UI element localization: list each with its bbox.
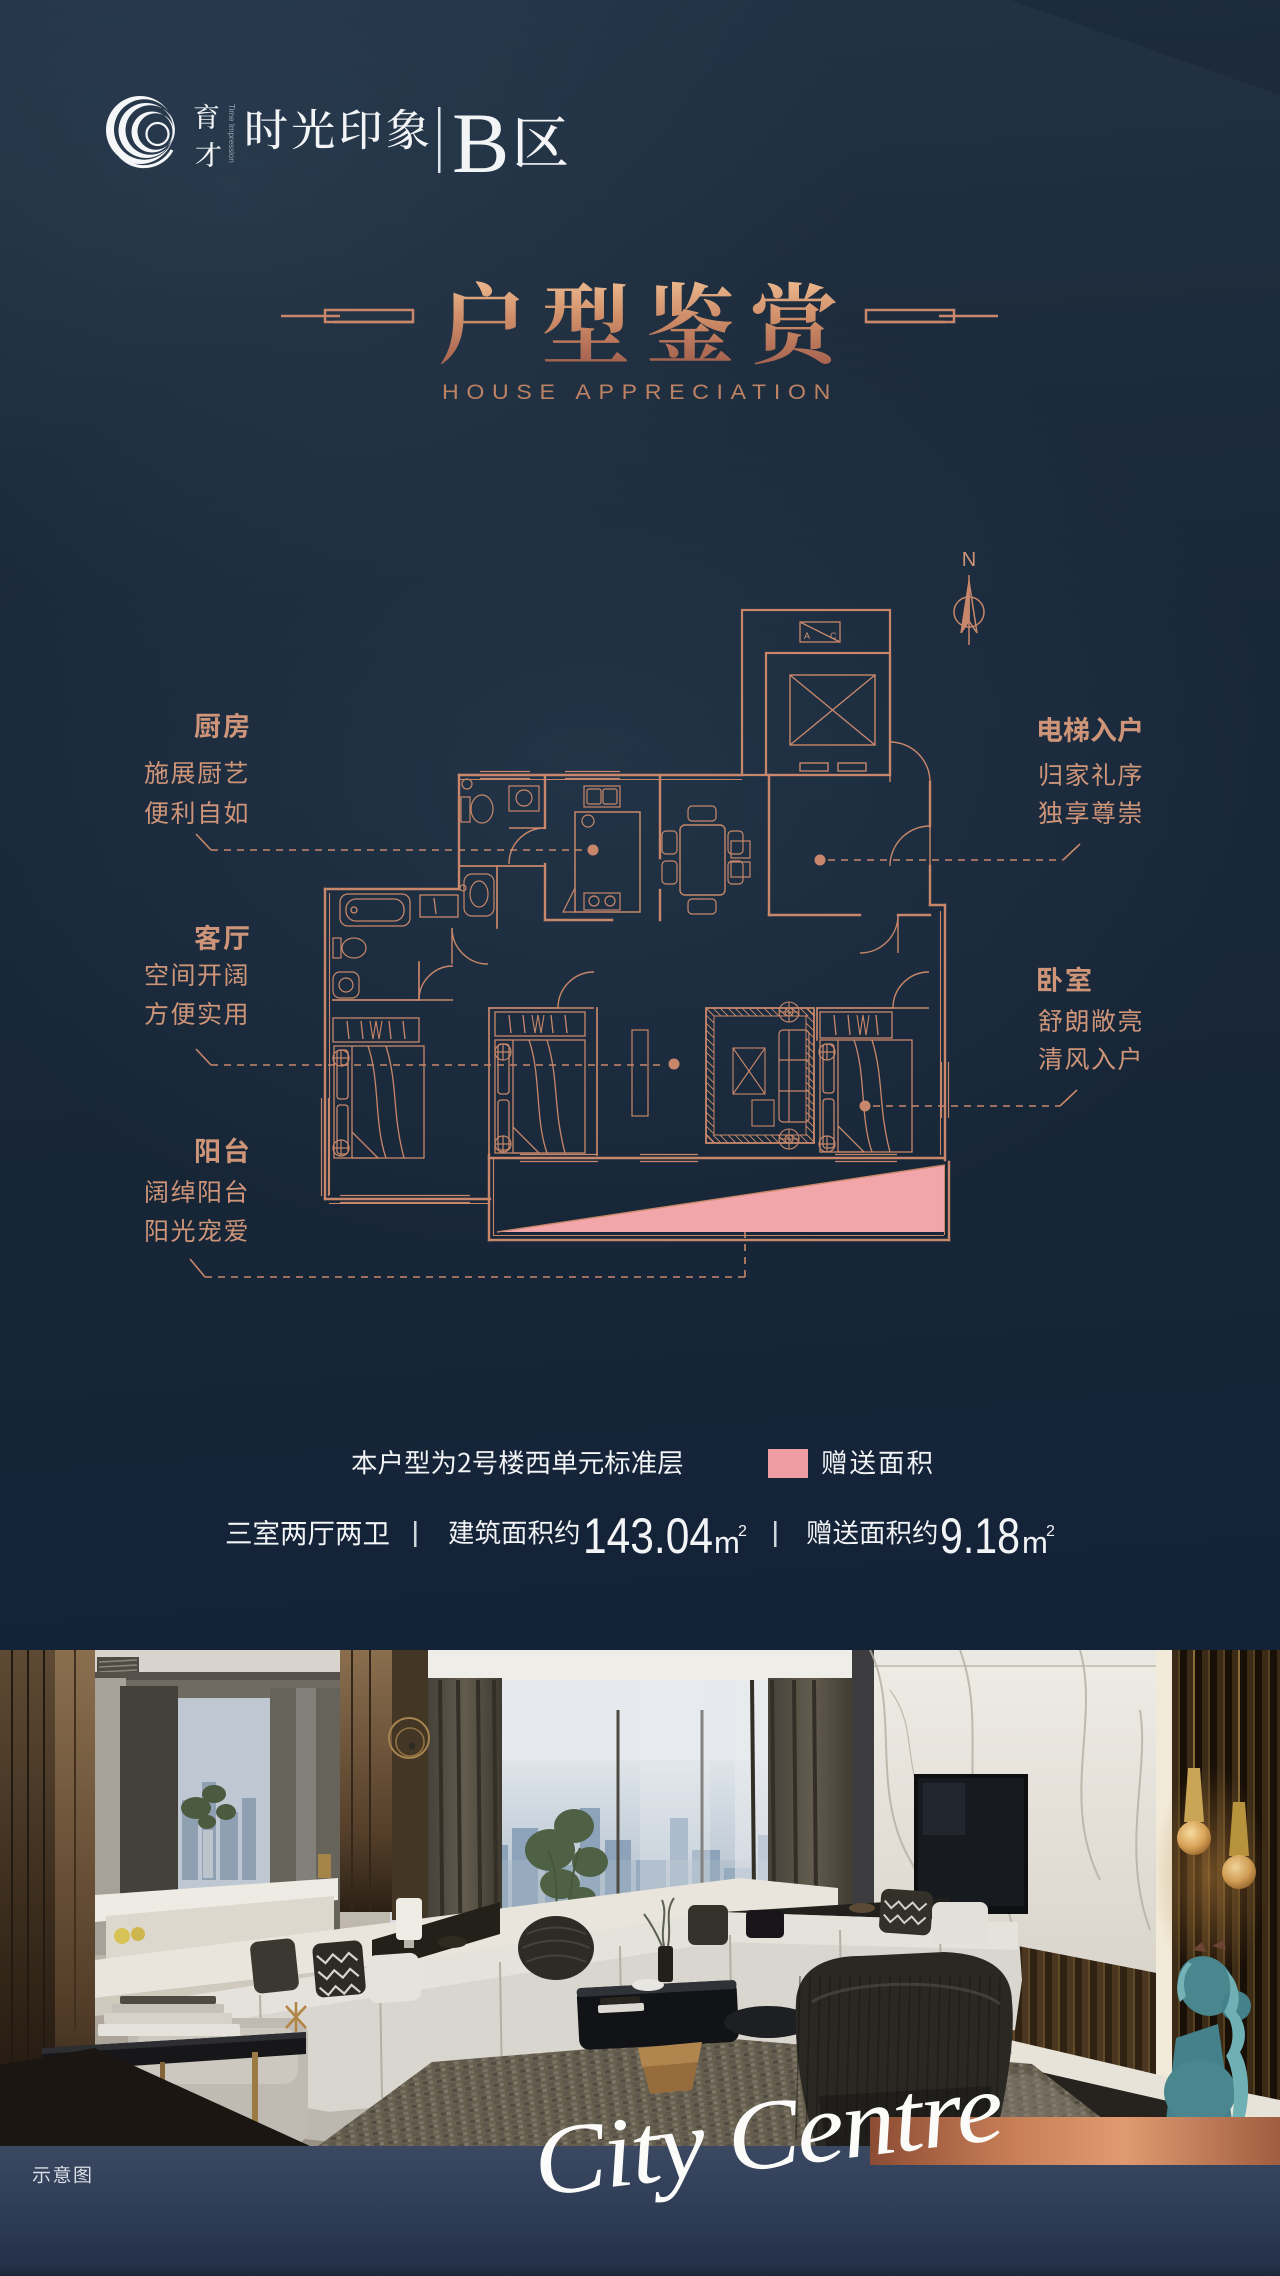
svg-text:HOUSE APPRECIATION: HOUSE APPRECIATION [442, 381, 838, 404]
svg-text:N: N [962, 549, 976, 571]
svg-text:9.18: 9.18 [940, 1508, 1020, 1564]
svg-text:B: B [452, 95, 509, 191]
svg-text:A: A [804, 631, 810, 641]
svg-text:m: m [714, 1525, 740, 1560]
svg-text:Time Impression: Time Impression [227, 104, 236, 163]
svg-text:m: m [1022, 1525, 1048, 1560]
svg-text:2: 2 [738, 1523, 747, 1540]
svg-text:2: 2 [1046, 1523, 1055, 1540]
svg-text:143.04: 143.04 [583, 1508, 713, 1564]
svg-text:C: C [830, 631, 837, 641]
